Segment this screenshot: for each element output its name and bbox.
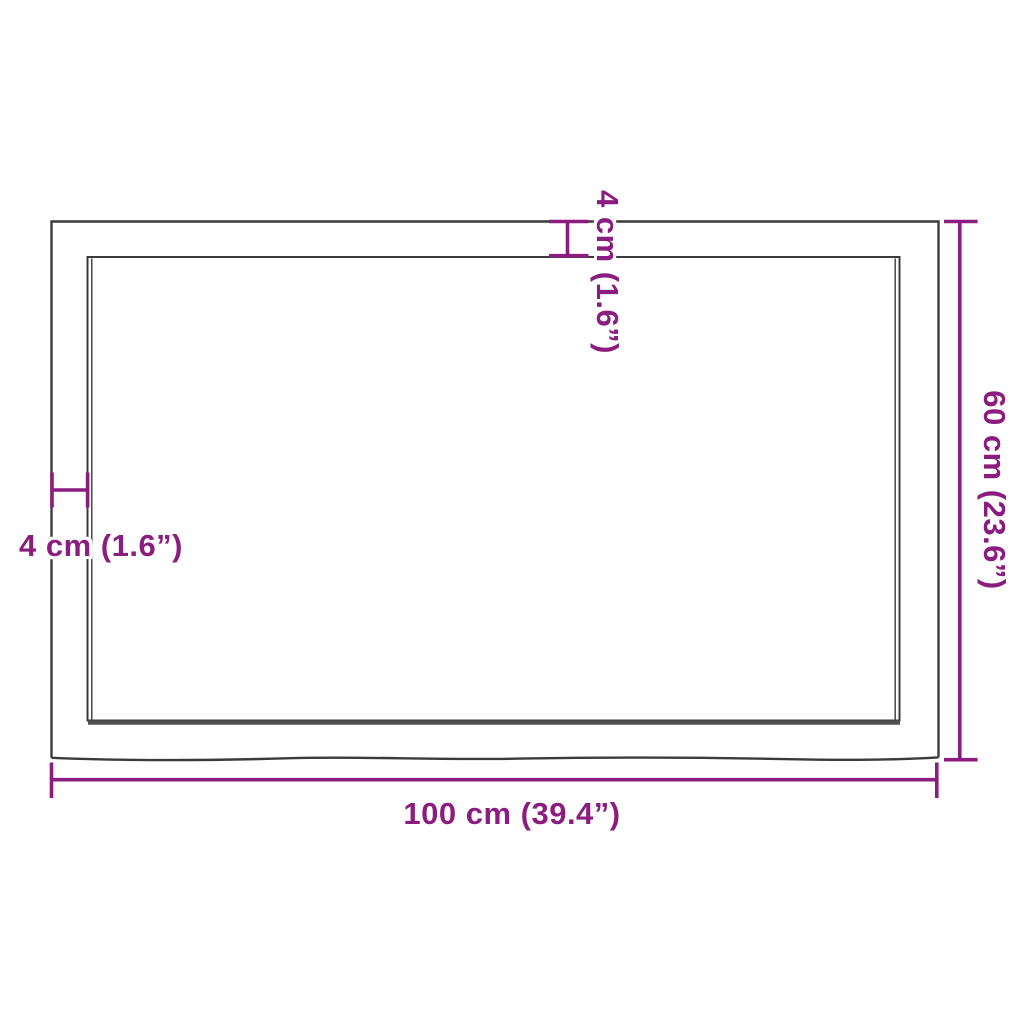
diagram-canvas xyxy=(0,0,1024,1024)
height-dimension-label: 60 cm (23.6”) xyxy=(976,390,1012,590)
dimension-lines-group xyxy=(52,222,978,799)
outer-board-outline xyxy=(52,222,939,758)
board-outline-group xyxy=(52,222,939,761)
outer-board-bottom-edge xyxy=(52,757,939,760)
thickness-top-label: 4 cm (1.6”) xyxy=(589,190,625,354)
inner-surface-outline xyxy=(88,257,900,721)
thickness-left-label: 4 cm (1.6”) xyxy=(19,528,183,564)
width-dimension-label: 100 cm (39.4”) xyxy=(403,796,620,832)
dimension-diagram: 100 cm (39.4”) 60 cm (23.6”) 4 cm (1.6”)… xyxy=(0,0,1024,1024)
